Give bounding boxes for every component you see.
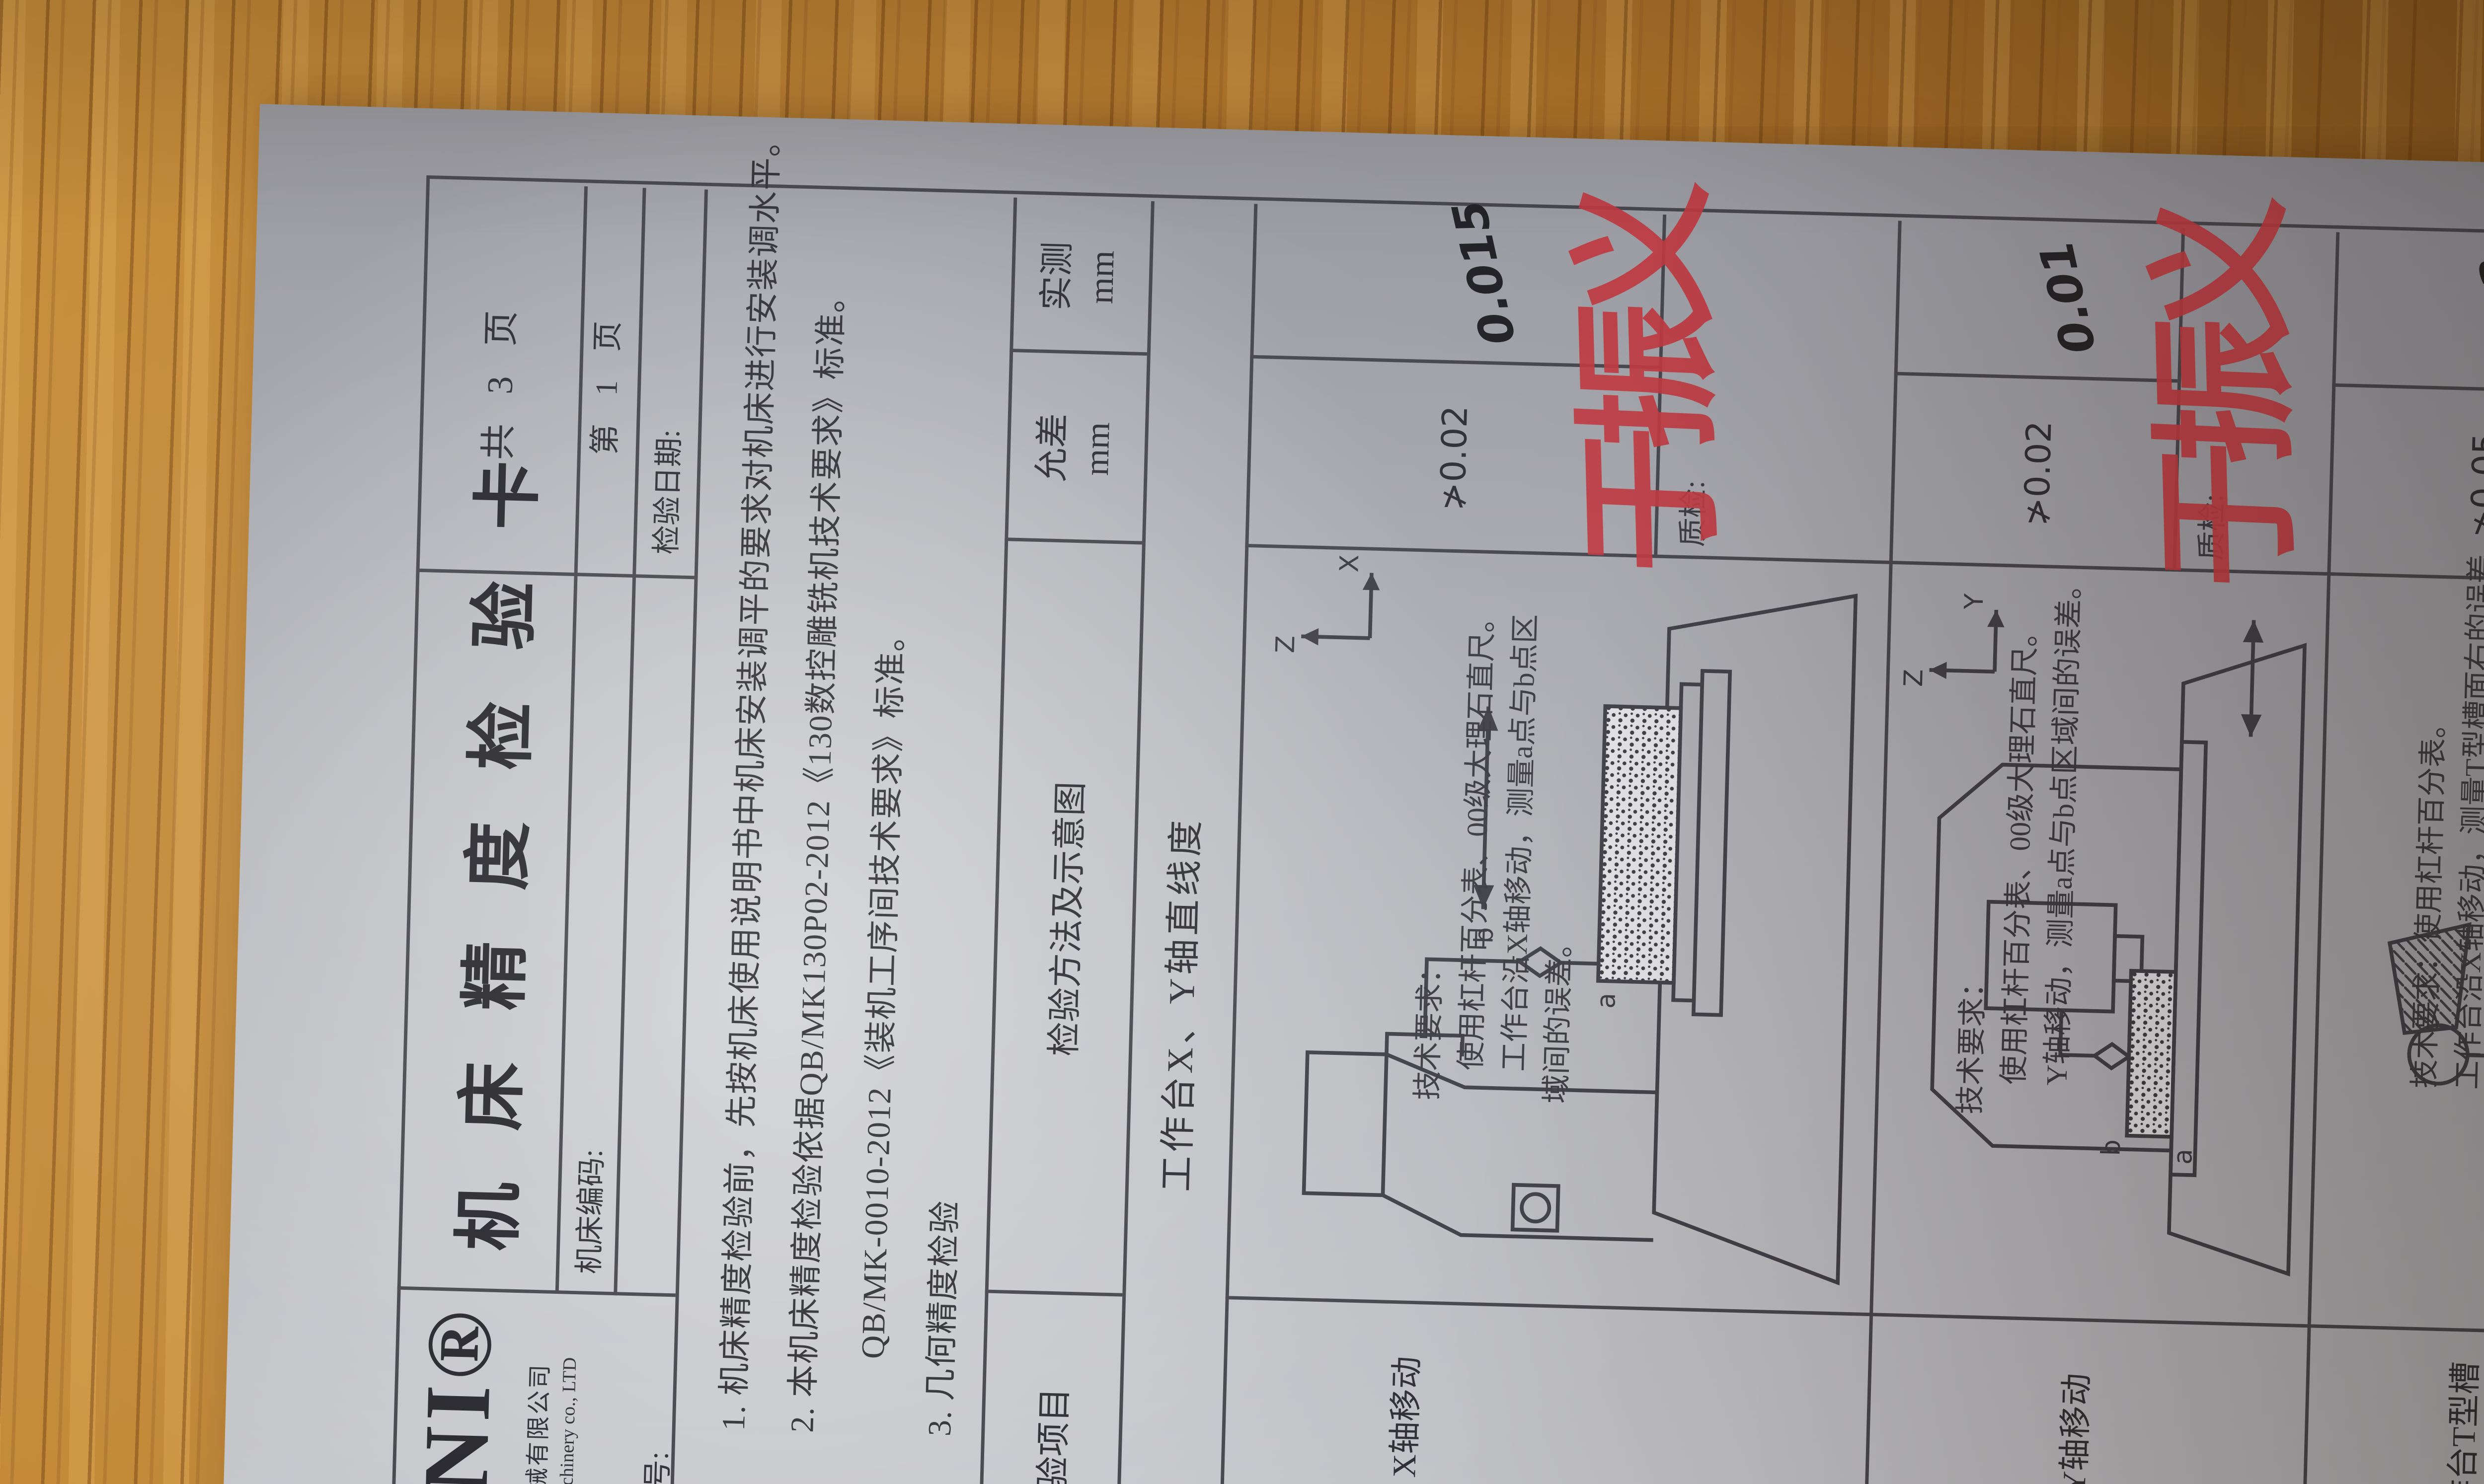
col-header-item: 检验项目 <box>1021 1310 1079 1484</box>
page-title: 机 床 精 度 检 验 卡 <box>433 580 550 1252</box>
logo-block: KONI® 尼精密机械有限公司 ni precision machinery c… <box>398 1293 583 1484</box>
machine-code-label: 机床编码: <box>564 1149 611 1275</box>
inspection-card-paper: KONI® 尼精密机械有限公司 ni precision machinery c… <box>192 104 2484 1484</box>
pages-total: 共 3 页 <box>467 189 529 571</box>
col-header-tolerance: 允差 <box>1022 353 1077 543</box>
point-b-label: b <box>2096 1139 2126 1156</box>
point-a-label: a <box>2168 1148 2198 1165</box>
row-c-item-label-line1: 工作台T型槽 <box>2436 1361 2484 1484</box>
axis-icon-zx: Z X <box>1270 553 1381 656</box>
col-header-measured-unit: mm <box>1082 200 1125 355</box>
note-line-4: 3. 几何精度检验 <box>914 1199 967 1437</box>
svg-text:Z: Z <box>1899 668 1929 687</box>
row-b-schematic-machine-front-view: b a Z Y <box>1882 570 2324 1319</box>
row-a-tech-requirements: 技术要求： 使用杠杆百分表、00级大理石直尺。 工作台沿X轴移动，测量a点与b点… <box>1406 601 1591 1104</box>
row-b-item-label: b. Y轴移动 <box>2048 1372 2098 1484</box>
machine-no-label: 号: <box>633 1451 677 1484</box>
brand-logo: KONI® <box>398 1293 514 1484</box>
inspect-date-label: 检验日期: <box>642 429 688 555</box>
point-a-label: a <box>1591 992 1622 1009</box>
svg-text:Z: Z <box>1270 635 1301 654</box>
row-a-item-label: a. X轴移动 <box>1378 1355 1428 1484</box>
svg-text:X: X <box>1334 554 1365 573</box>
row-b-tolerance-value: ≯0.02 <box>2015 378 2061 568</box>
row-c-tech-requirements: 技术要求：使用杠杆百分表。 工作台沿X轴移动，测量T型槽面右的误差。 <box>2403 523 2484 1090</box>
col-header-measured: 实测 <box>1027 198 1081 354</box>
row-a-tolerance-value: ≯0.02 <box>1431 363 1477 553</box>
company-name-cn: 尼精密机械有限公司 <box>515 1296 558 1484</box>
row-b-tech-requirements: 技术要求： 使用杠杆百分表、00级大理石直尺。 Y轴移动，测量a点与b点区域间的… <box>1948 567 2092 1117</box>
row-b-inspector-signature: 于振义 <box>2100 213 2325 593</box>
col-header-tolerance-unit: mm <box>1077 354 1121 544</box>
row-a-inspector-signature: 于振义 <box>1523 197 1747 578</box>
photo-of-inspection-card: KONI® 尼精密机械有限公司 ni precision machinery c… <box>0 0 2484 1484</box>
